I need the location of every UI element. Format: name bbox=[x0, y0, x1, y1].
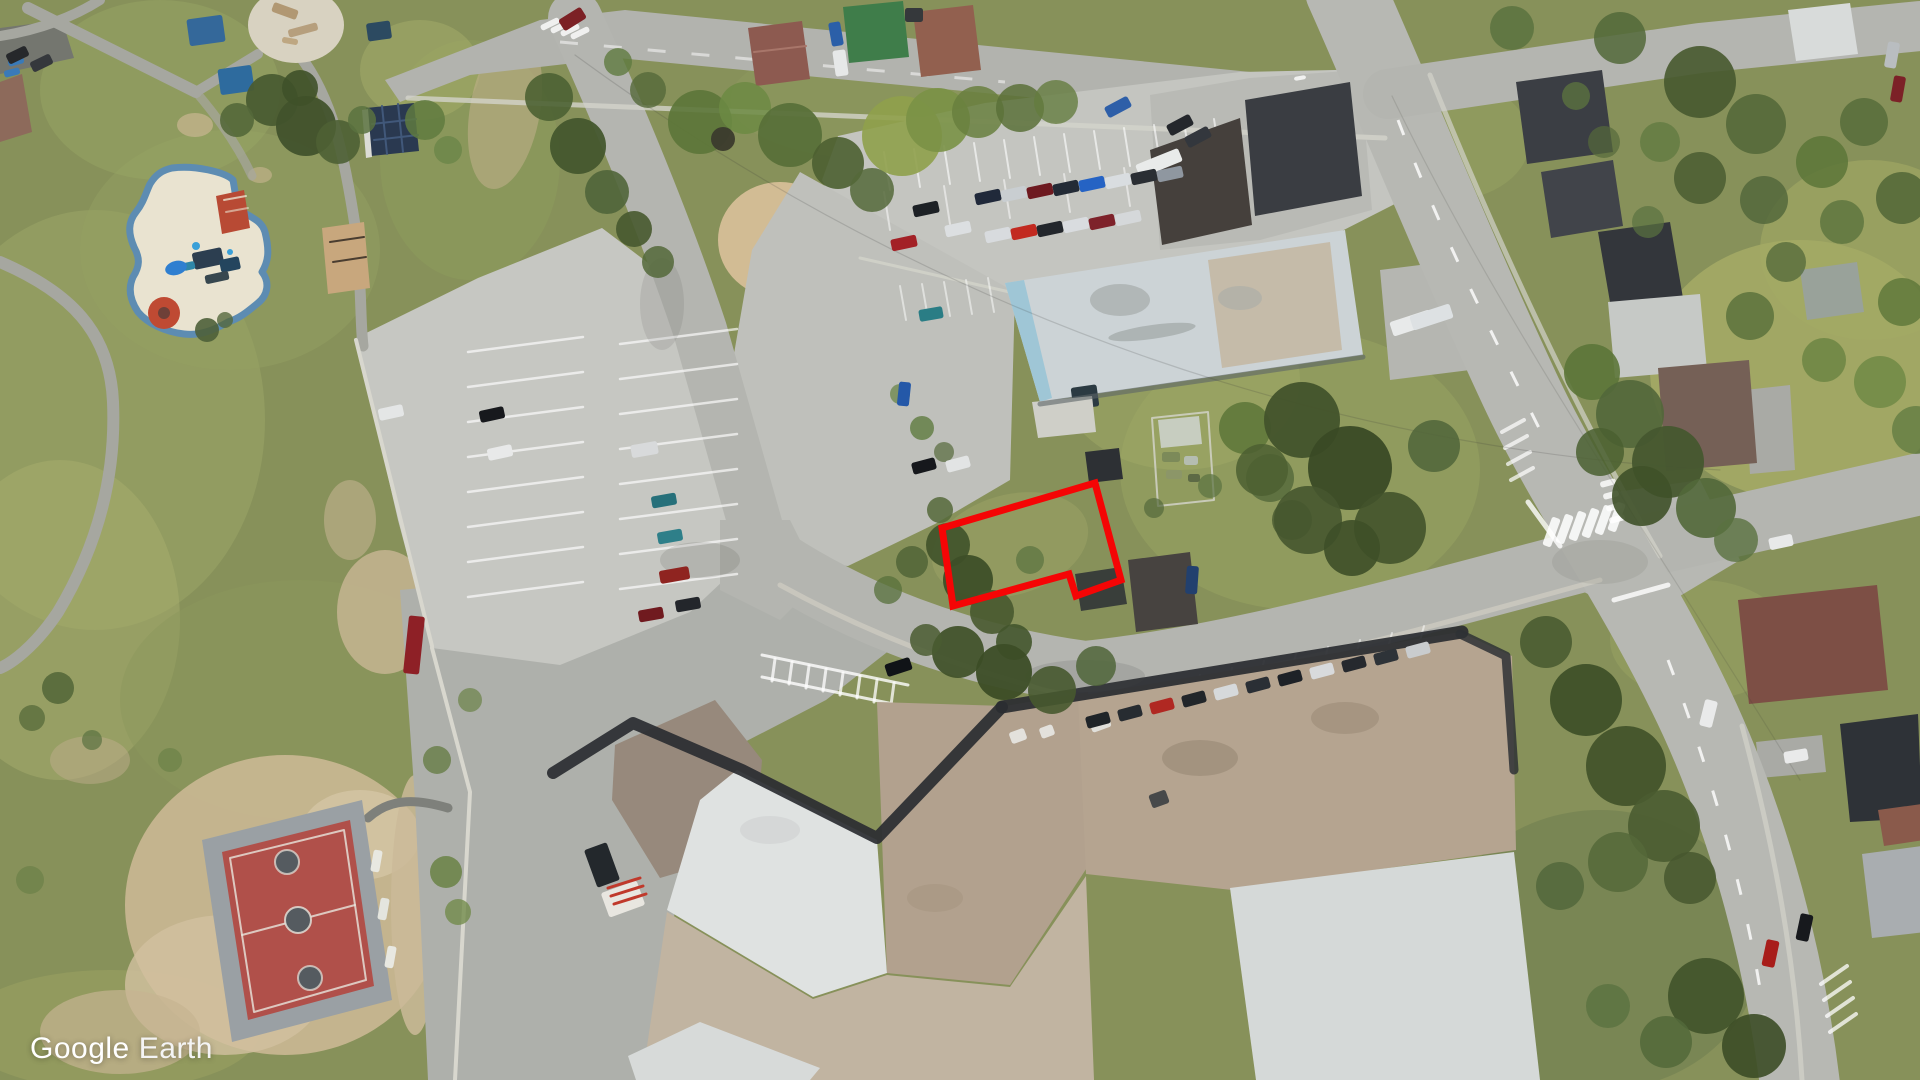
google-earth-canvas[interactable]: GoogleEarth bbox=[0, 0, 1920, 1080]
satellite-imagery bbox=[0, 0, 1920, 1080]
watermark-google: Google bbox=[30, 1032, 130, 1065]
google-earth-watermark: GoogleEarth bbox=[30, 1032, 213, 1066]
watermark-earth: Earth bbox=[139, 1032, 213, 1065]
